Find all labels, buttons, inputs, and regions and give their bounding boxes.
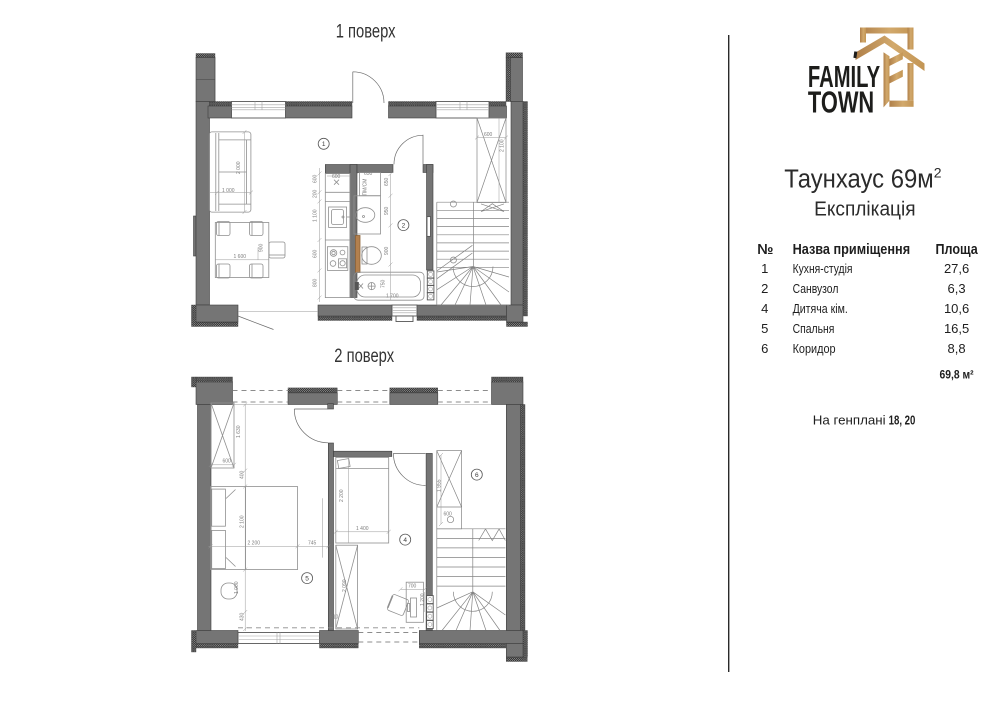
svg-text:6,3: 6,3: [948, 281, 966, 296]
svg-text:1 630: 1 630: [236, 425, 242, 438]
svg-text:900: 900: [384, 246, 390, 255]
svg-text:ПМ/СМ: ПМ/СМ: [363, 179, 369, 196]
svg-text:600: 600: [484, 132, 493, 138]
svg-text:700: 700: [408, 584, 417, 590]
svg-text:Коридор: Коридор: [793, 341, 836, 356]
svg-text:8,8: 8,8: [948, 341, 966, 356]
svg-text:2 000: 2 000: [236, 161, 242, 174]
svg-text:1 200: 1 200: [420, 593, 426, 606]
svg-text:Санвузол: Санвузол: [793, 281, 839, 296]
svg-text:600: 600: [444, 512, 453, 518]
svg-text:2 100: 2 100: [500, 139, 506, 152]
svg-text:2 200: 2 200: [339, 489, 345, 502]
svg-text:18, 20: 18, 20: [889, 413, 916, 428]
svg-text:5: 5: [305, 575, 309, 582]
svg-text:Експлікація: Експлікація: [814, 198, 916, 220]
svg-text:745: 745: [308, 541, 317, 547]
svg-text:800: 800: [313, 278, 319, 287]
svg-text:2 090: 2 090: [342, 579, 348, 592]
svg-text:1 600: 1 600: [234, 254, 247, 260]
svg-text:10,6: 10,6: [944, 301, 969, 316]
svg-text:№: №: [757, 242, 773, 258]
svg-text:5: 5: [761, 321, 768, 336]
svg-text:Кухня-студія: Кухня-студія: [793, 261, 853, 276]
svg-text:1 000: 1 000: [222, 188, 235, 194]
svg-text:200: 200: [313, 189, 319, 198]
svg-text:600: 600: [313, 174, 319, 183]
svg-text:1: 1: [322, 141, 326, 148]
svg-text:На генплані: На генплані: [813, 413, 886, 428]
svg-text:1 400: 1 400: [356, 526, 369, 532]
svg-text:16,5: 16,5: [944, 321, 969, 336]
svg-text:1 поверх: 1 поверх: [336, 20, 396, 42]
svg-text:600: 600: [223, 459, 232, 465]
svg-text:1 955: 1 955: [437, 479, 443, 492]
svg-text:2: 2: [402, 222, 406, 229]
svg-text:650: 650: [384, 177, 390, 186]
svg-text:2: 2: [934, 165, 942, 181]
svg-text:600: 600: [332, 174, 341, 180]
svg-text:950: 950: [384, 206, 390, 215]
svg-text:6: 6: [761, 341, 768, 356]
svg-text:Назва приміщення: Назва приміщення: [793, 242, 911, 258]
svg-text:1 000: 1 000: [234, 581, 240, 594]
svg-text:900: 900: [259, 243, 265, 252]
svg-text:69,8 м²: 69,8 м²: [939, 368, 973, 382]
svg-text:650: 650: [364, 171, 373, 177]
svg-text:1 700: 1 700: [386, 294, 399, 300]
svg-text:400: 400: [239, 470, 245, 479]
svg-text:2 поверх: 2 поверх: [334, 345, 394, 367]
svg-text:4: 4: [761, 301, 768, 316]
svg-text:Спальня: Спальня: [793, 321, 835, 336]
svg-text:430: 430: [239, 612, 245, 621]
svg-text:6: 6: [475, 472, 479, 479]
svg-text:27,6: 27,6: [944, 261, 969, 276]
svg-text:600: 600: [313, 249, 319, 258]
svg-text:4: 4: [403, 537, 407, 544]
svg-text:TOWN: TOWN: [808, 86, 874, 120]
svg-text:610: 610: [330, 615, 339, 621]
svg-text:2: 2: [761, 281, 768, 296]
svg-text:2 200: 2 200: [248, 541, 261, 547]
svg-text:Площа: Площа: [936, 242, 979, 258]
svg-text:750: 750: [381, 279, 387, 288]
svg-text:Дитяча кім.: Дитяча кім.: [793, 301, 848, 316]
svg-text:1 100: 1 100: [313, 209, 319, 222]
svg-text:1: 1: [761, 261, 768, 276]
svg-text:Таунхаус 69м: Таунхаус 69м: [784, 166, 934, 194]
svg-text:2 100: 2 100: [239, 515, 245, 528]
